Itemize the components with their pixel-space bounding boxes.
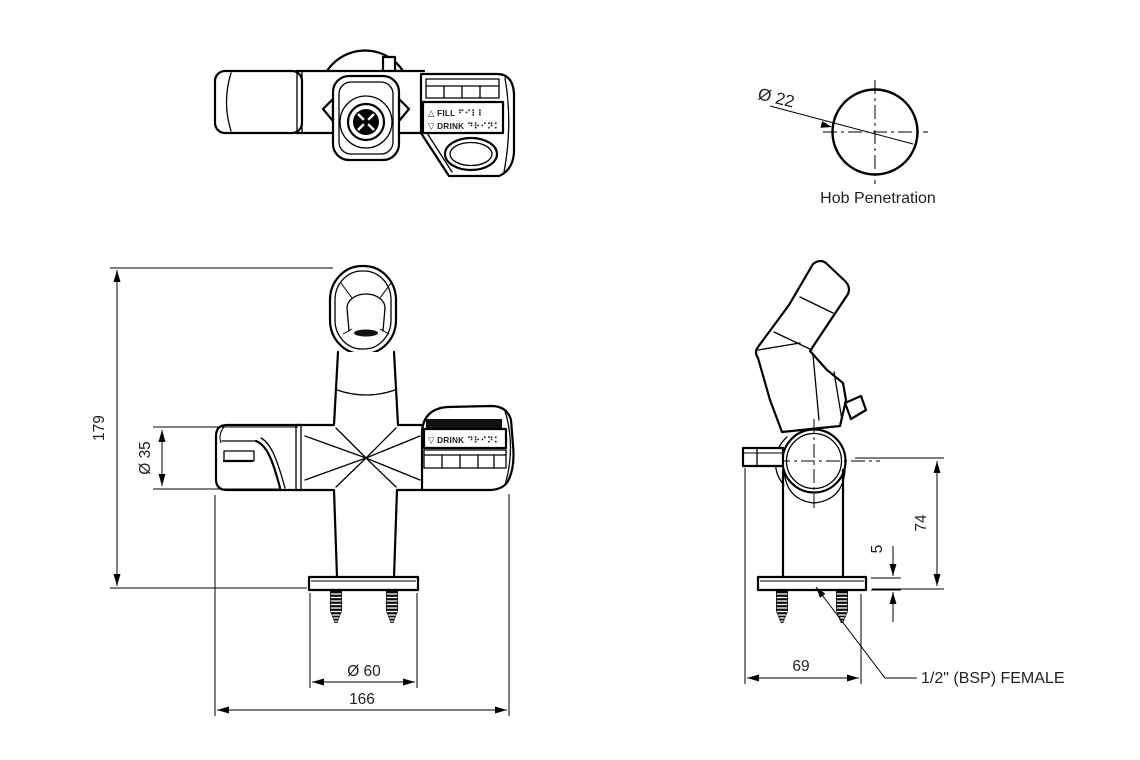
- dim-text-hob-hole: Ø 22: [756, 84, 796, 111]
- fill-label-edge: [426, 419, 502, 428]
- mounting-flange-side: [758, 577, 866, 590]
- dim-text-spout-diameter: Ø 35: [137, 441, 154, 475]
- dim-text-flange-diameter: Ø 60: [347, 663, 381, 680]
- drink-handle-front: ▽ DRINK ⠙⠗⠊⠝⠅: [422, 406, 514, 490]
- bsp-female-label: 1/2" (BSP) FEMALE: [921, 670, 1065, 687]
- dim-overall-width: 166: [215, 494, 509, 716]
- lever-latch: [845, 396, 866, 419]
- front-view: ▽ DRINK ⠙⠗⠊⠝⠅: [216, 266, 514, 623]
- dim-text-height-above-hob: 74: [913, 514, 930, 532]
- body-tab: [383, 57, 395, 72]
- top-view: △ FILL ⠋⠊⠇⠇ ▽ DRINK ⠙⠗⠊⠝⠅: [215, 51, 514, 177]
- dim-text-base-depth: 69: [792, 658, 809, 675]
- side-view: [743, 261, 880, 623]
- dim-hob-hole-diameter: Ø 22: [756, 84, 913, 144]
- mounting-flange-front: [309, 577, 418, 590]
- drink-label: ▽ DRINK ⠙⠗⠊⠝⠅: [428, 121, 500, 131]
- bsp-female-callout: 1/2" (BSP) FEMALE: [816, 587, 1065, 687]
- drink-label-front: ▽ DRINK ⠙⠗⠊⠝⠅: [428, 435, 500, 445]
- hob-penetration-view: Ø 22 Hob Penetration: [756, 80, 936, 207]
- fill-label: △ FILL ⠋⠊⠇⠇: [428, 108, 484, 118]
- lever-handle-top: △ FILL ⠋⠊⠇⠇ ▽ DRINK ⠙⠗⠊⠝⠅: [421, 74, 514, 176]
- spout-front: [216, 425, 301, 490]
- dim-flange-diameter: Ø 60: [310, 593, 417, 688]
- riser-column-front: [334, 490, 397, 577]
- dim-flange-thickness: 5: [869, 545, 901, 622]
- spout: [215, 71, 302, 133]
- dim-text-overall-width: 166: [349, 691, 375, 708]
- lever-handle-side: [756, 261, 866, 432]
- technical-drawing: △ FILL ⠋⠊⠇⠇ ▽ DRINK ⠙⠗⠊⠝⠅ Ø 22 Hob Penet…: [0, 0, 1140, 760]
- dim-text-overall-height: 179: [91, 415, 108, 441]
- control-knob: [323, 76, 409, 160]
- dim-height-above-hob: 74: [855, 458, 944, 589]
- hob-penetration-label: Hob Penetration: [820, 190, 936, 207]
- lever-handle-front: [330, 266, 396, 354]
- spout-stub-side: [743, 448, 783, 466]
- dim-text-flange-thickness: 5: [869, 545, 886, 554]
- neck: [334, 352, 398, 425]
